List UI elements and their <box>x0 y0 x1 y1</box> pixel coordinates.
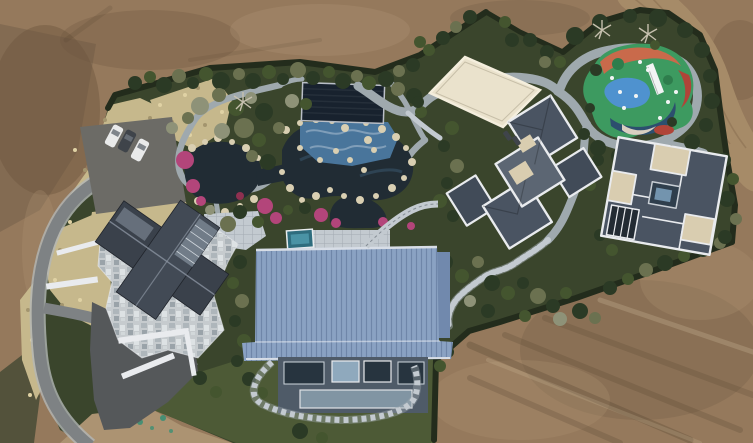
shrub <box>585 103 595 113</box>
shrub <box>205 205 215 215</box>
shrub <box>220 216 236 232</box>
edge-rock <box>364 136 372 144</box>
shrub <box>434 360 446 372</box>
shrub <box>572 303 588 319</box>
shrub <box>606 244 618 256</box>
shrub <box>235 294 249 308</box>
aerial-estate-photo: Aerial drone photograph of a landscaped … <box>0 0 753 443</box>
shrub <box>603 281 617 295</box>
edge-rock <box>333 148 339 154</box>
edge-rock <box>392 133 400 141</box>
edge-rock <box>347 157 353 163</box>
edge-rock <box>229 139 235 145</box>
shrub <box>323 66 335 78</box>
shrub <box>378 71 394 87</box>
shrub <box>639 263 653 277</box>
shrub <box>464 295 476 307</box>
play-equipment <box>622 106 626 110</box>
shrub <box>484 275 500 291</box>
edge-rock <box>361 167 367 173</box>
teal-paint-mark <box>150 426 154 430</box>
shrub <box>699 118 713 132</box>
facade-window-mid-left <box>332 361 359 382</box>
edge-rock <box>327 187 333 193</box>
play-equipment <box>638 60 642 64</box>
shrub <box>657 255 673 271</box>
shrub <box>684 134 700 150</box>
shrub <box>441 177 453 189</box>
shrub <box>156 77 172 93</box>
teal-paint-mark <box>160 415 166 421</box>
shrub <box>667 117 677 127</box>
edge-rock <box>371 147 377 153</box>
play-equipment <box>654 80 658 84</box>
shrub <box>212 88 226 102</box>
edge-rock <box>341 124 349 132</box>
shrub <box>214 123 230 139</box>
play-equipment <box>666 100 670 104</box>
shrub <box>277 73 289 85</box>
shrub <box>393 65 405 77</box>
shrub <box>539 56 551 68</box>
shrub <box>530 288 546 304</box>
shrub <box>650 40 660 50</box>
shrub <box>578 128 590 140</box>
shrub <box>227 277 239 289</box>
shrub <box>445 121 459 135</box>
shrub <box>499 16 511 28</box>
shrub <box>412 96 424 108</box>
spa-pool-water <box>291 233 310 244</box>
shrub <box>335 73 351 89</box>
shrub <box>299 202 311 214</box>
shrub <box>233 68 245 80</box>
shrub <box>199 67 213 81</box>
grass-tuft <box>158 103 162 107</box>
grass-tuft <box>28 393 32 397</box>
grass-tuft <box>183 93 187 97</box>
east-villa-cream-pad-north <box>650 144 690 176</box>
edge-rock <box>188 144 196 152</box>
edge-rock <box>279 169 285 175</box>
edge-rock <box>297 145 303 151</box>
shrub <box>406 58 420 72</box>
shrub <box>273 122 285 134</box>
shrub <box>231 355 243 367</box>
flower-patch <box>236 192 244 200</box>
grass-tuft <box>103 118 107 122</box>
shrub <box>523 33 537 47</box>
shrub <box>505 33 519 47</box>
edge-rock <box>250 195 258 203</box>
flower-patch <box>331 218 341 228</box>
edge-rock <box>356 196 364 204</box>
shrub <box>233 205 247 219</box>
shrub <box>438 140 450 152</box>
east-villa-cream-pad-southeast <box>681 214 715 245</box>
shrub <box>703 69 717 83</box>
edge-rock <box>388 184 396 192</box>
shrub <box>187 77 199 89</box>
shrub <box>560 287 572 299</box>
grass-tuft <box>73 148 77 152</box>
shrub <box>166 122 178 134</box>
flower-patch <box>314 208 328 222</box>
shrub <box>450 21 462 33</box>
shrub <box>677 22 693 38</box>
shrub <box>623 9 637 23</box>
shrub <box>283 205 293 215</box>
shrub <box>730 213 742 225</box>
shrub <box>727 173 739 185</box>
spa-pool <box>286 229 313 249</box>
play-equipment <box>610 76 614 80</box>
shrub <box>255 103 273 121</box>
shrub <box>362 76 376 90</box>
east-villa <box>601 137 727 255</box>
grass-tuft <box>53 278 57 282</box>
grass-tuft <box>78 298 82 302</box>
flower-patch <box>257 198 273 214</box>
shrub <box>212 72 230 90</box>
edge-rock <box>312 192 320 200</box>
edge-rock <box>341 193 347 199</box>
shrub <box>290 62 306 78</box>
edge-rock <box>286 184 294 192</box>
shrub <box>246 150 258 162</box>
grass-tuft <box>203 123 207 127</box>
flower-patch <box>186 179 200 193</box>
shrub <box>472 256 484 268</box>
shrub <box>285 94 299 108</box>
shrub <box>649 9 667 27</box>
teal-paint-mark <box>169 429 173 433</box>
playground-mound <box>612 58 624 70</box>
edge-rock <box>373 193 379 199</box>
shrub <box>252 216 264 228</box>
shrub <box>172 69 186 83</box>
shrub <box>694 42 710 58</box>
shrub <box>455 269 469 283</box>
grass-tuft <box>68 220 72 224</box>
barn-side-annex-roof <box>437 252 450 338</box>
shrub <box>423 44 435 56</box>
flower-patch <box>196 196 206 206</box>
facade-window-wide <box>300 390 412 408</box>
shrub <box>414 36 426 48</box>
edge-rock <box>408 158 416 166</box>
flower-patch <box>176 151 194 169</box>
shrub <box>229 315 241 327</box>
edge-rock <box>378 125 386 133</box>
shrub <box>546 299 560 313</box>
shrub <box>554 56 566 68</box>
shrub <box>260 154 276 170</box>
grass-tuft <box>26 308 30 312</box>
shrub <box>622 273 634 285</box>
play-equipment <box>646 68 650 72</box>
shrub <box>553 312 567 326</box>
dirt-patch <box>60 10 240 70</box>
play-equipment <box>618 90 622 94</box>
shrub <box>450 159 464 173</box>
edge-rock <box>202 139 208 145</box>
shrub <box>351 70 363 82</box>
facade-window-mid-right <box>364 361 391 382</box>
shrub <box>519 310 531 322</box>
shrub <box>262 65 276 79</box>
aerial-photo-stage: Aerial drone photograph of a landscaped … <box>0 0 753 443</box>
east-villa-cream-pad-west <box>607 171 636 205</box>
playground-mound <box>663 75 673 85</box>
shrub <box>300 98 312 110</box>
shrub <box>590 64 602 76</box>
shrub <box>292 423 308 439</box>
shrub <box>234 118 254 138</box>
edge-rock <box>403 145 409 151</box>
shrub <box>718 230 732 244</box>
shrub <box>306 71 320 85</box>
flower-patch <box>270 212 282 224</box>
shrub <box>566 27 584 45</box>
play-equipment <box>658 116 662 120</box>
facade-window-left <box>284 362 324 384</box>
shrub <box>245 73 261 89</box>
barn-roof-ribs <box>242 246 453 361</box>
shrub <box>391 82 405 96</box>
play-equipment <box>634 94 638 98</box>
shrub <box>191 97 209 115</box>
flower-patch <box>407 222 415 230</box>
shrub <box>501 286 515 300</box>
edge-rock <box>401 175 407 181</box>
shrub <box>436 31 450 45</box>
shrub <box>182 112 194 124</box>
grass-tuft <box>83 168 87 172</box>
shrub <box>517 277 529 289</box>
shrub <box>704 93 720 109</box>
barn-eave-break <box>255 341 440 342</box>
edge-rock <box>317 157 323 163</box>
shrub <box>233 255 247 269</box>
edge-rock <box>242 144 250 152</box>
shrub <box>128 76 142 90</box>
shrub <box>589 312 601 324</box>
shrub <box>210 386 222 398</box>
shrub <box>481 304 495 318</box>
shrub <box>590 140 606 156</box>
shrub <box>463 10 477 24</box>
shrub <box>252 133 266 147</box>
grass-tuft <box>220 110 224 114</box>
play-equipment <box>674 90 678 94</box>
shrub <box>144 71 156 83</box>
